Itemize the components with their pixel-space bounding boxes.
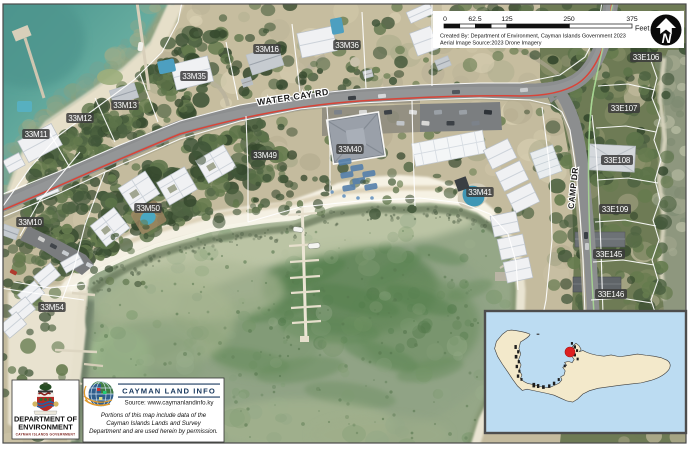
svg-text:62.5: 62.5 <box>468 16 481 23</box>
svg-text:33E146: 33E146 <box>598 290 625 299</box>
svg-text:CAYMAN ISLANDS GOVERNMENT: CAYMAN ISLANDS GOVERNMENT <box>16 433 76 437</box>
svg-text:Created By: Department of Envi: Created By: Department of Environment, C… <box>440 34 626 40</box>
svg-text:250: 250 <box>563 16 575 23</box>
svg-text:33M40: 33M40 <box>338 145 362 154</box>
svg-text:33M11: 33M11 <box>25 130 49 139</box>
svg-text:33M35: 33M35 <box>182 72 206 81</box>
svg-text:CAYMAN LAND INFO: CAYMAN LAND INFO <box>122 387 216 396</box>
svg-text:33E107: 33E107 <box>611 104 638 113</box>
svg-text:N: N <box>662 31 672 46</box>
svg-text:ENVIRONMENT: ENVIRONMENT <box>18 423 73 432</box>
svg-text:33M54: 33M54 <box>40 303 64 312</box>
svg-text:125: 125 <box>501 16 513 23</box>
svg-text:Cayman Islands Lands and Surve: Cayman Islands Lands and Survey <box>106 420 201 427</box>
svg-text:33M50: 33M50 <box>136 204 160 213</box>
svg-text:33M16: 33M16 <box>255 45 279 54</box>
svg-text:Portions of this map include d: Portions of this map include data of the <box>101 412 207 419</box>
svg-text:Aerial Image Source:2023 Drone: Aerial Image Source:2023 Drone Imagery <box>440 41 542 47</box>
svg-text:Source: www.caymanlandinfo.ky: Source: www.caymanlandinfo.ky <box>124 400 214 407</box>
svg-text:0: 0 <box>443 16 447 23</box>
svg-text:Department and are used herein: Department and are used herein by permis… <box>89 428 218 435</box>
svg-text:33M41: 33M41 <box>468 188 492 197</box>
svg-text:33M49: 33M49 <box>253 151 277 160</box>
svg-text:33M12: 33M12 <box>68 114 92 123</box>
svg-text:33E108: 33E108 <box>604 156 631 165</box>
svg-text:Feet: Feet <box>635 24 649 33</box>
svg-text:33E106: 33E106 <box>633 53 660 62</box>
svg-text:375: 375 <box>626 16 638 23</box>
svg-text:33E109: 33E109 <box>602 205 629 214</box>
svg-text:33E145: 33E145 <box>596 250 623 259</box>
svg-text:33M13: 33M13 <box>113 101 137 110</box>
svg-text:33M36: 33M36 <box>335 41 359 50</box>
svg-text:33M10: 33M10 <box>18 218 42 227</box>
